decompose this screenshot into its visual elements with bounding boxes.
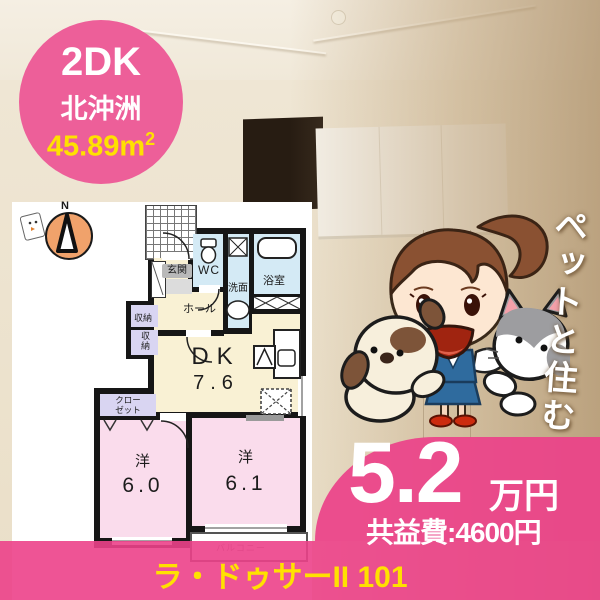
badge-layout-type: 2DK [61, 41, 141, 83]
mascot-eye [29, 222, 32, 225]
toilet-icon [202, 247, 216, 263]
badge-area: 45.89m2 [47, 129, 155, 164]
label-wc: WC [198, 263, 220, 277]
property-badge: 2DK 北沖洲 45.89m2 [19, 20, 183, 184]
badge-area-sup: 2 [145, 129, 155, 149]
toilet-icon [201, 239, 216, 247]
label-closet: クロー ゼット [102, 396, 154, 415]
sink-icon [227, 301, 249, 319]
building-name: ラ・ドゥサーII 101 [0, 552, 560, 596]
mascot-beak [31, 227, 35, 231]
label-hall: ホール [183, 300, 216, 316]
closet-door-marks [104, 420, 153, 430]
label-closet-l1: クロー [115, 395, 141, 405]
label-west1-size: 6.0 [115, 474, 171, 498]
label-west2-size: 6.1 [218, 472, 274, 496]
listing-flyer: N [0, 0, 600, 600]
common-fee: 共益費:4600円 [366, 511, 541, 551]
compass-needle-icon [58, 215, 76, 251]
bathtub-icon [258, 238, 296, 258]
badge-location: 北沖洲 [61, 87, 142, 126]
label-dk: DK [180, 343, 252, 371]
badge-area-value: 45.89m [47, 130, 145, 162]
kitchen-sink-icon [278, 350, 295, 366]
label-bath: 浴室 [263, 272, 285, 288]
rent-amount: 5.2 [348, 424, 462, 523]
label-shuno-a: 収納 [134, 311, 152, 324]
label-dk-size: 7.6 [180, 372, 252, 395]
label-west2: 洋 [238, 446, 253, 467]
label-closet-l2: ゼット [115, 405, 141, 415]
hatch-window-icon [254, 297, 300, 309]
label-genkan: 玄関 [162, 264, 192, 278]
label-west1: 洋 [135, 450, 150, 471]
door-arc-icon [163, 233, 189, 259]
label-senmen: 洗面 [228, 279, 248, 294]
door-arc-icon [161, 421, 188, 448]
mascot-eye [35, 221, 38, 224]
label-shuno-b: 収納 [139, 331, 152, 351]
